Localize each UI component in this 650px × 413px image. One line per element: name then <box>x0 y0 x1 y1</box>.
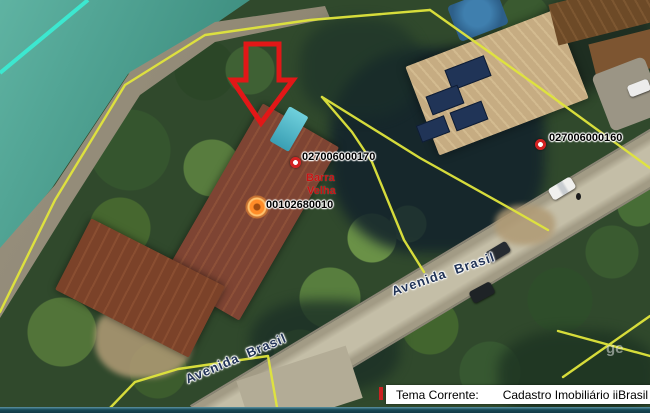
parcel-label: 027006000160 <box>549 132 622 144</box>
theme-current-value: Cadastro Imobiliário iiBrasil <box>503 388 648 402</box>
shadow-vegetation <box>300 18 420 118</box>
neighborhood-label-line2: Velha <box>307 185 336 197</box>
theme-current-label: Tema Corrente: <box>396 388 479 402</box>
parcel-label: 00102680010 <box>266 199 333 211</box>
status-bar: Tema Corrente: Cadastro Imobiliário iiBr… <box>386 385 650 404</box>
dirt-patch <box>495 205 555 245</box>
parcel-marker-icon[interactable] <box>290 157 301 168</box>
neighborhood-label-line1: Barra <box>306 172 335 184</box>
pedestrian <box>576 193 581 200</box>
imagery-watermark: ge <box>606 340 624 357</box>
status-theme-segment: Tema Corrente: Cadastro Imobiliário iiBr… <box>386 385 650 404</box>
parcel-marker-icon[interactable] <box>535 139 546 150</box>
parcel-label: 027006000170 <box>302 151 375 163</box>
red-line-fragment <box>379 387 383 400</box>
window-bottom-border <box>0 407 650 413</box>
cadastral-map-app: 027006000170 00102680010 027006000160 Ba… <box>0 0 650 413</box>
